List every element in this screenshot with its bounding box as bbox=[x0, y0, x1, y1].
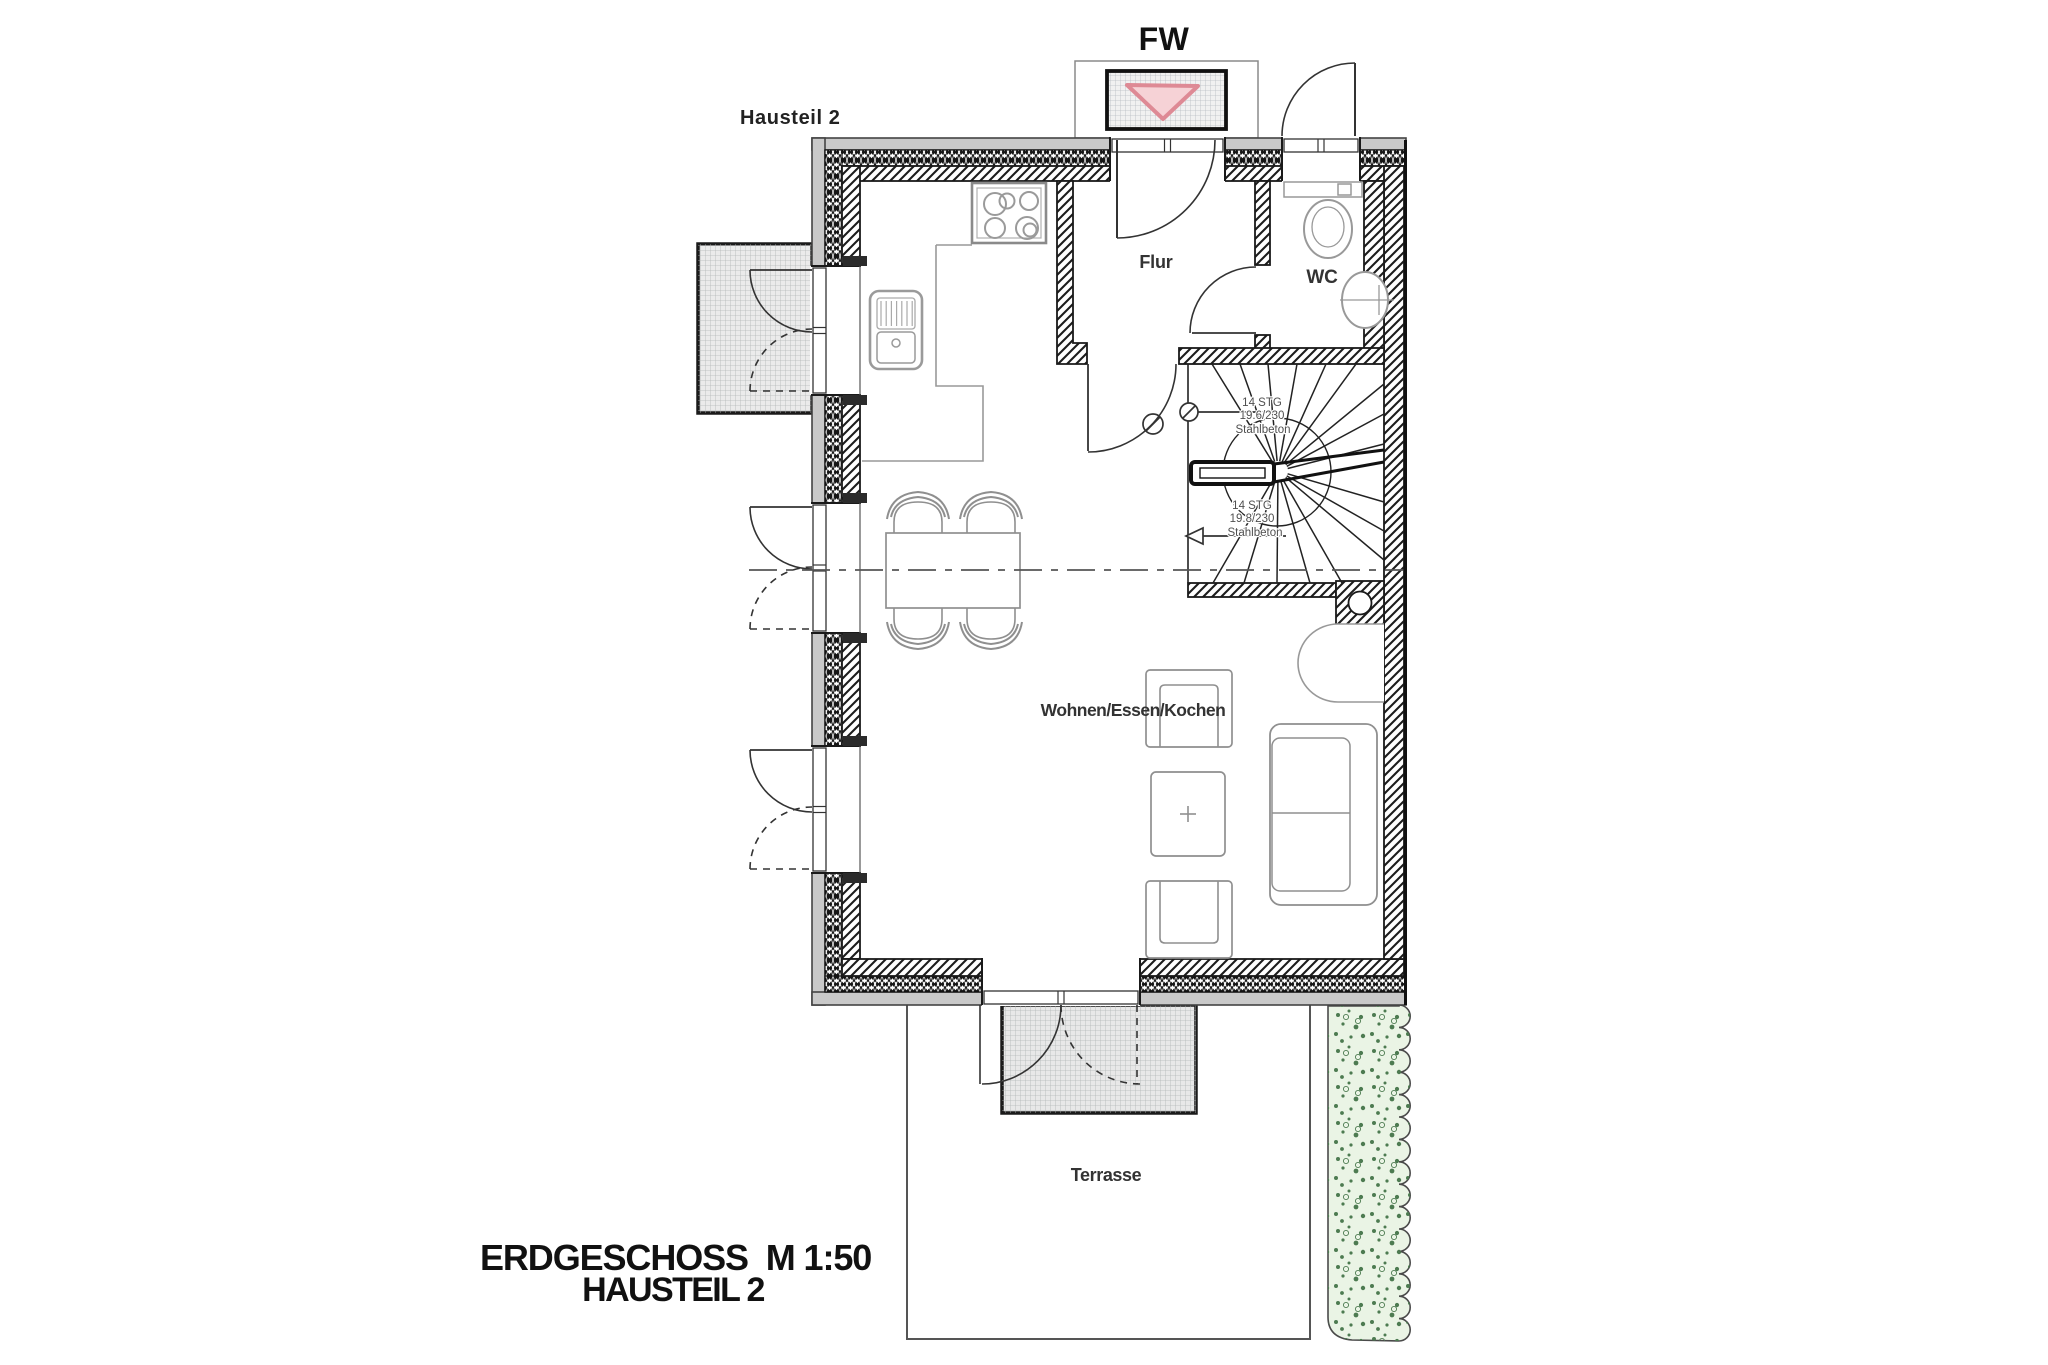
svg-text:Flur: Flur bbox=[1139, 252, 1172, 272]
svg-text:FW: FW bbox=[1139, 21, 1190, 57]
svg-text:19.8/230: 19.8/230 bbox=[1230, 513, 1275, 525]
svg-text:WC: WC bbox=[1306, 267, 1338, 288]
svg-text:Hausteil 2: Hausteil 2 bbox=[740, 107, 840, 129]
svg-text:14 STG: 14 STG bbox=[1242, 397, 1282, 409]
svg-text:Terrasse: Terrasse bbox=[1071, 1165, 1142, 1185]
svg-text:Stahlbeton: Stahlbeton bbox=[1228, 527, 1283, 539]
svg-text:Stahlbeton: Stahlbeton bbox=[1236, 424, 1291, 436]
svg-text:HAUSTEIL 2: HAUSTEIL 2 bbox=[582, 1271, 764, 1309]
svg-text:14 STG: 14 STG bbox=[1232, 500, 1272, 512]
svg-text:Wohnen/Essen/Kochen: Wohnen/Essen/Kochen bbox=[1041, 700, 1226, 720]
svg-text:19.6/230: 19.6/230 bbox=[1240, 410, 1285, 422]
